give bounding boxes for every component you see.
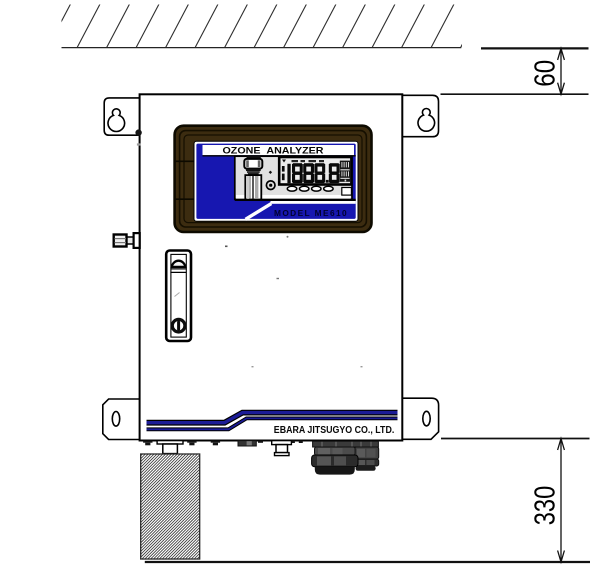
svg-text:OZONE ANALYZER: OZONE ANALYZER [223, 145, 324, 155]
svg-text:MODEL ME610: MODEL ME610 [274, 208, 348, 218]
svg-text:EBARA JITSUGYO CO., LTD.: EBARA JITSUGYO CO., LTD. [274, 425, 395, 436]
svg-text:60: 60 [529, 60, 561, 87]
svg-text:330: 330 [529, 486, 561, 526]
